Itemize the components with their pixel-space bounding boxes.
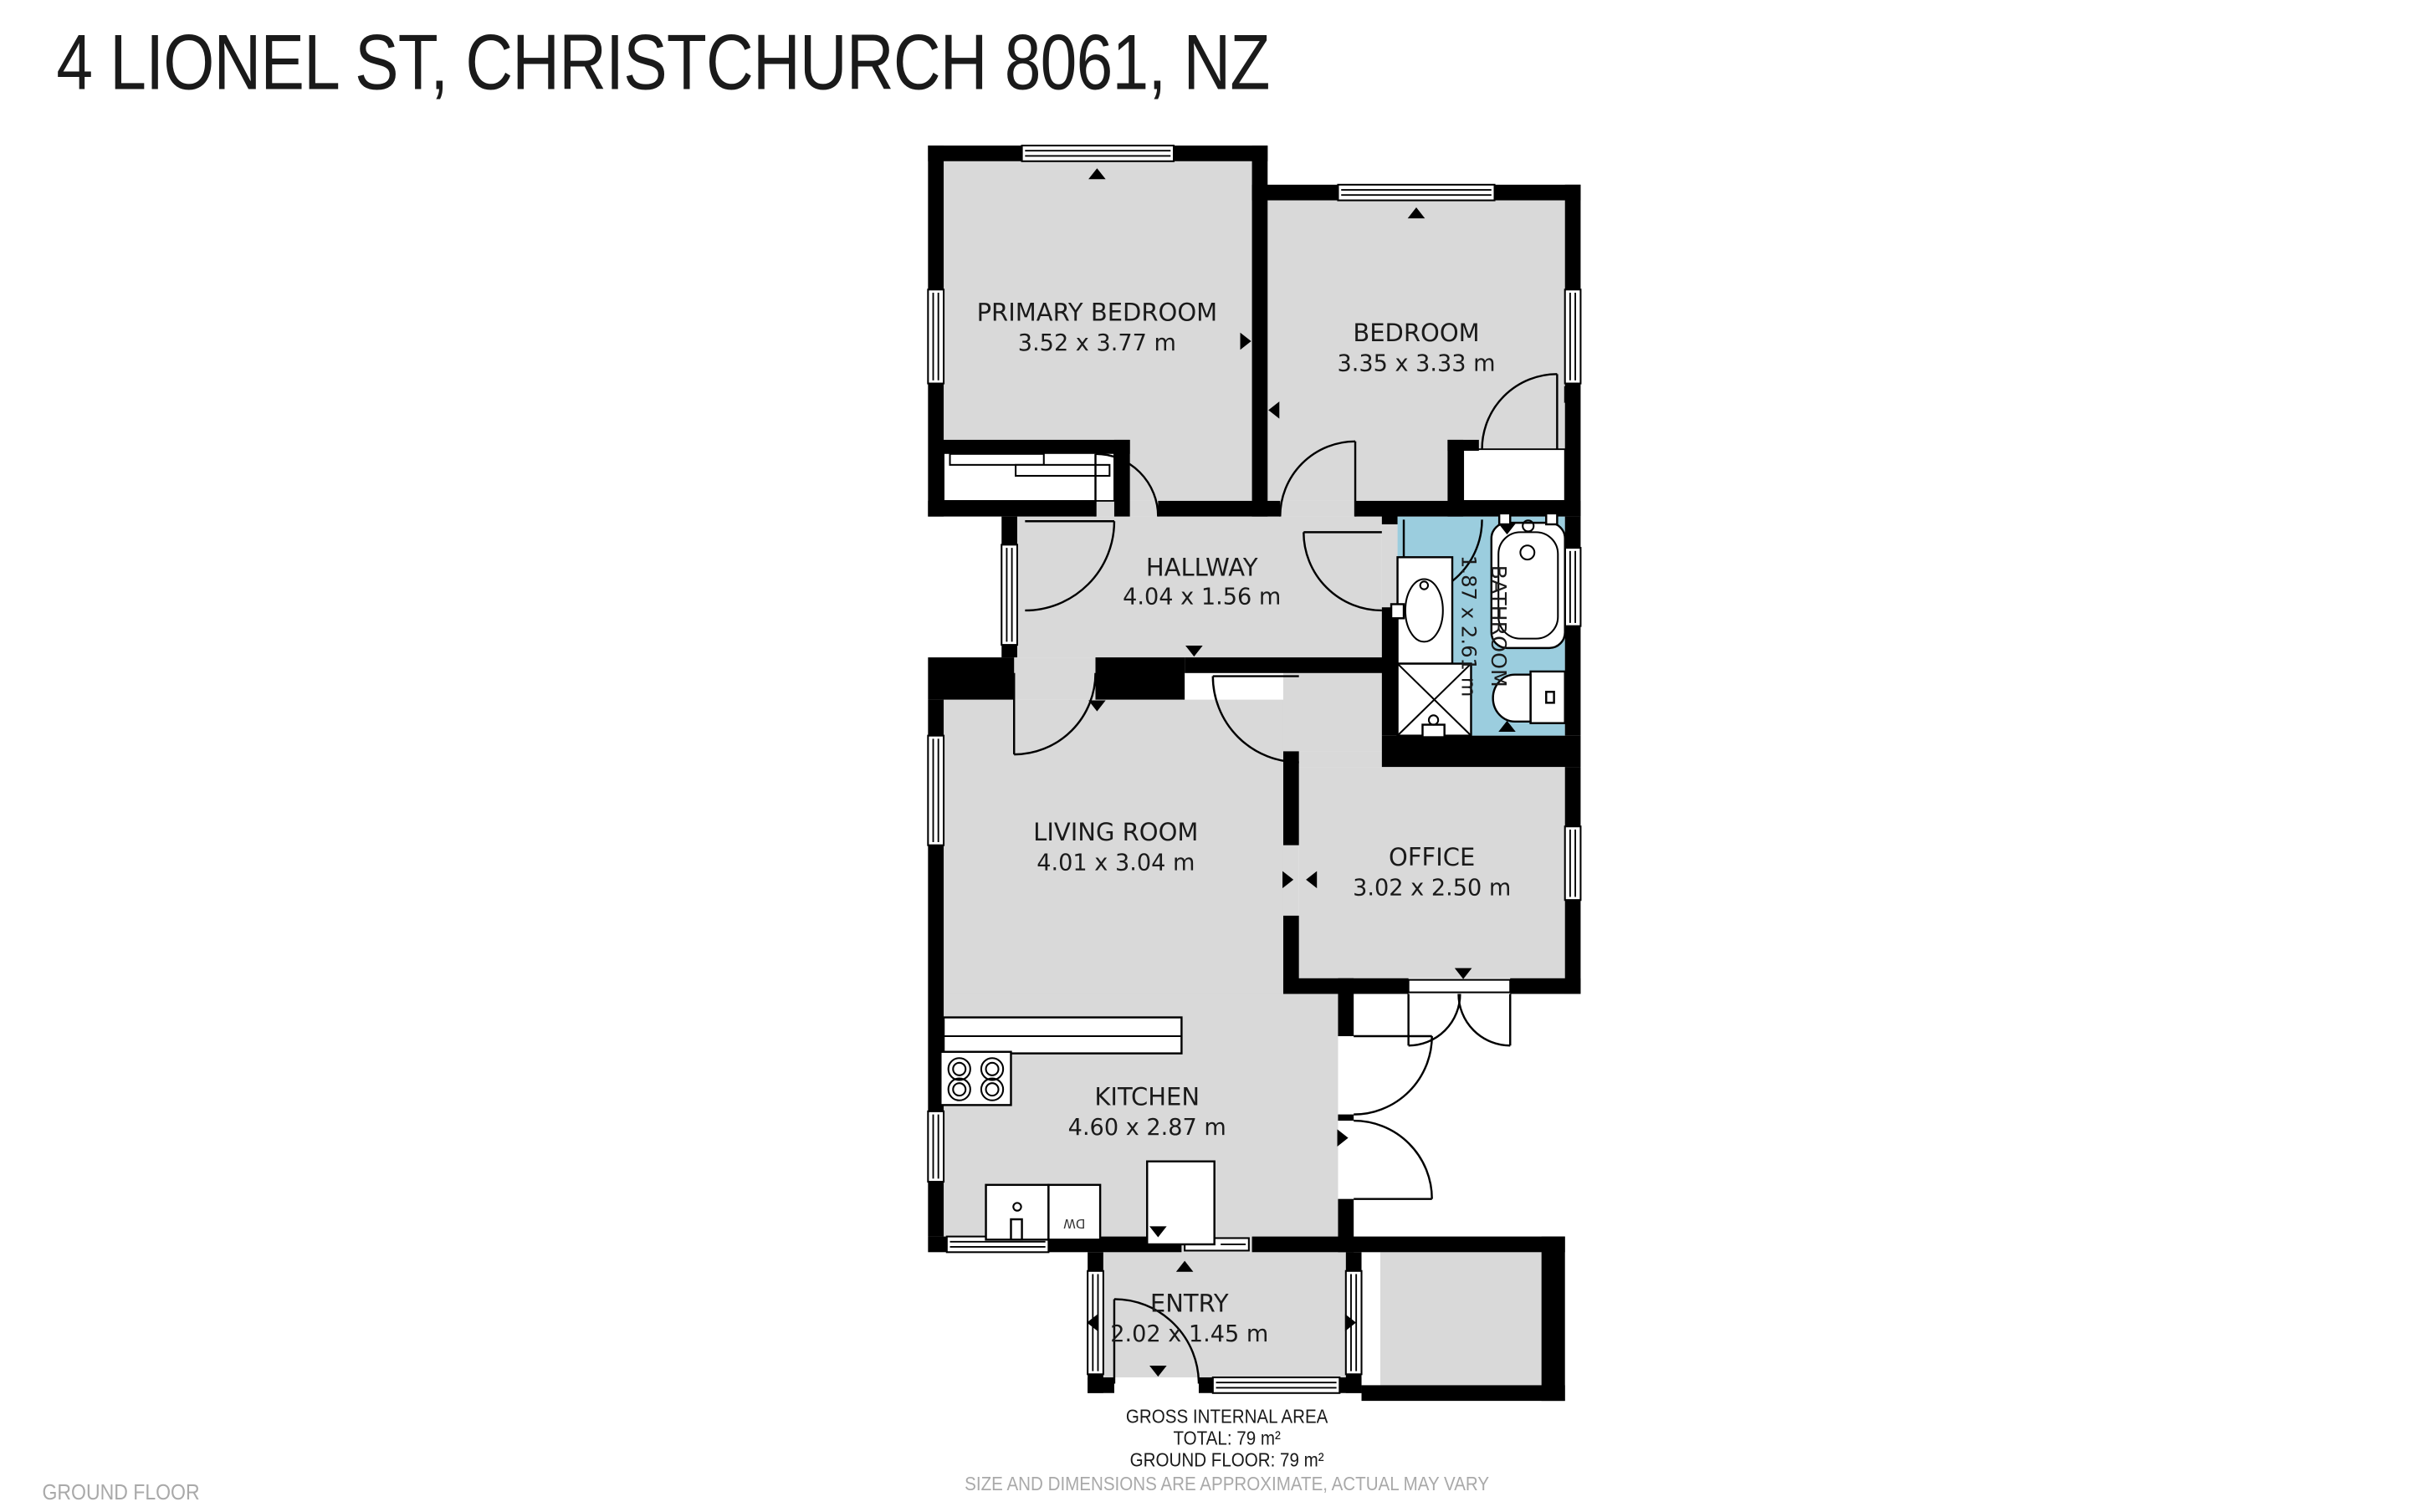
footer: GROSS INTERNAL AREA TOTAL: 79 m² GROUND … (965, 1405, 1489, 1494)
office-name: OFFICE (1389, 843, 1475, 871)
bedroom-name: BEDROOM (1353, 319, 1479, 347)
wall-kitchen-right-a (1338, 978, 1354, 1036)
wall-office-bottom-right (1510, 978, 1580, 994)
window-entry-bottom (1213, 1377, 1340, 1393)
wall-bed-closet-top (1447, 440, 1478, 451)
wall-pb-bottom-left (928, 501, 1095, 517)
window-hallway-left (1001, 544, 1017, 645)
kitchen-name: KITCHEN (1094, 1082, 1200, 1111)
primary-bedroom-dims: 3.52 x 3.77 m (1018, 330, 1176, 356)
stove (940, 1052, 1011, 1106)
marker-right-kitchen (1338, 1129, 1349, 1147)
wall-kitchen-bottom-right (1252, 1237, 1565, 1253)
bedroom-dims: 3.35 x 3.33 m (1337, 351, 1495, 377)
wall-bathroom-left-upper (1382, 504, 1398, 524)
wall-pb-closet-top (936, 440, 1130, 454)
bathroom-door-floor (1382, 524, 1398, 607)
wall-pb-bottom-right (1158, 501, 1280, 517)
wall-porch-right (1542, 1237, 1565, 1402)
door-kitchen-exterior-lower (1354, 1121, 1432, 1199)
window-bathroom-right (1565, 548, 1581, 626)
living-room-floor (944, 700, 1283, 994)
office-door-threshold (1409, 980, 1511, 993)
bedroom-door-floor (1280, 501, 1355, 517)
living-room-name: LIVING ROOM (1033, 818, 1198, 846)
floor-label: GROUND FLOOR (43, 1481, 200, 1505)
hallway-name: HALLWAY (1146, 554, 1258, 582)
window-bedroom-top (1338, 185, 1494, 201)
door-office-french-left (1409, 994, 1461, 1045)
floor-plan: DW PRIMARY BEDROOM 3.52 x 3.77 m BEDROOM… (0, 0, 2421, 1512)
wall-hallway-bottom-right (1185, 657, 1393, 673)
wall-bathroom-office (1382, 736, 1581, 767)
office-dims: 3.02 x 2.50 m (1353, 876, 1511, 902)
window-pb-top (1022, 146, 1174, 161)
footer-disclaimer: SIZE AND DIMENSIONS ARE APPROXIMATE, ACT… (965, 1473, 1489, 1495)
wall-pb-bedroom-divider (1252, 146, 1268, 517)
window-kitchen-left (928, 1111, 944, 1182)
wall-porch-bottom (1362, 1385, 1565, 1401)
bathroom-dims: 1.87 x 2.61 m (1456, 555, 1481, 697)
footer-ground-floor-area: GROUND FLOOR: 79 m² (1130, 1448, 1324, 1471)
bedroom-closet (1463, 449, 1565, 501)
kitchen-dims: 4.60 x 2.87 m (1068, 1115, 1226, 1141)
vestibule-office-passage-floor (1299, 751, 1382, 767)
footer-gross-internal-area: GROSS INTERNAL AREA (1126, 1405, 1328, 1428)
wall-living-band-left (928, 657, 1014, 700)
wall-living-band-right (1096, 657, 1185, 700)
hallway-dims: 4.04 x 1.56 m (1123, 584, 1281, 610)
wall-office-left-upper (1283, 751, 1299, 845)
entry-dims: 2.02 x 1.45 m (1110, 1321, 1268, 1347)
door-kitchen-exterior-upper (1354, 1036, 1432, 1115)
wall-entry-bottom-left (1088, 1377, 1114, 1393)
primary-bedroom-name: PRIMARY BEDROOM (977, 299, 1218, 327)
porch-floor (1380, 1252, 1542, 1385)
kitchen-sink (986, 1185, 1049, 1240)
vanity-sink (1391, 557, 1452, 663)
wall-bathroom-left-lower (1382, 607, 1398, 735)
dishwasher-label: DW (1063, 1216, 1086, 1231)
wall-pb-closet-right (1114, 440, 1130, 517)
window-living-left (928, 736, 944, 845)
dishwasher: DW (1048, 1185, 1100, 1240)
bathroom-name: BATHROOM (1487, 565, 1511, 687)
office-floor (1299, 767, 1565, 978)
kitchen-counter (944, 1018, 1181, 1054)
wall-kitchen-right-b (1338, 1115, 1354, 1121)
footer-total-area: TOTAL: 79 m² (1173, 1427, 1280, 1449)
window-bedroom-right (1565, 289, 1581, 383)
hallway-door-floor (1014, 657, 1095, 700)
page-title: 4 LIONEL ST, CHRISTCHURCH 8061, NZ (56, 19, 1269, 106)
entry-name: ENTRY (1150, 1289, 1229, 1317)
living-room-dims: 4.01 x 3.04 m (1036, 850, 1195, 876)
vestibule-floor (1283, 673, 1382, 752)
wall-bed-closet-left (1447, 440, 1463, 517)
door-office-french-right (1459, 994, 1511, 1045)
window-office-right (1565, 826, 1581, 900)
window-pb-left (928, 289, 944, 383)
